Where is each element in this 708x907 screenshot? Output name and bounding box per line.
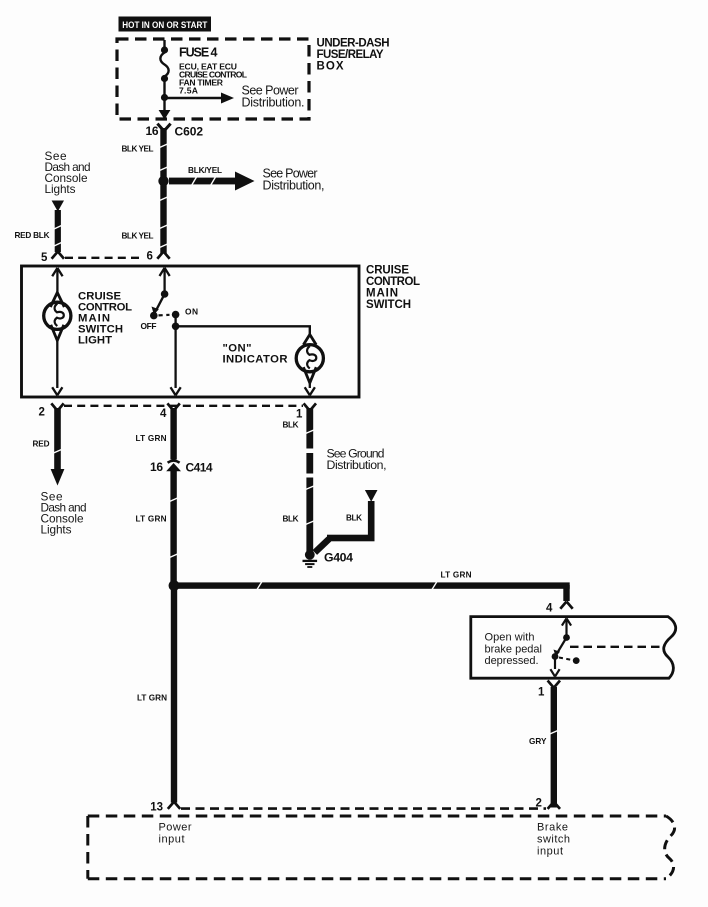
svg-text:Distribution,: Distribution, xyxy=(327,458,387,472)
svg-text:UNDER-DASH: UNDER-DASH xyxy=(317,38,390,50)
svg-text:7.5A: 7.5A xyxy=(179,86,198,96)
svg-text:Power: Power xyxy=(159,822,192,834)
svg-text:6: 6 xyxy=(147,251,153,263)
svg-text:depressed.: depressed. xyxy=(485,655,539,667)
svg-text:RED BLK: RED BLK xyxy=(15,231,50,240)
svg-text:Distribution.: Distribution. xyxy=(242,96,305,110)
svg-text:LT GRN: LT GRN xyxy=(136,434,167,443)
svg-text:Lights: Lights xyxy=(41,523,72,537)
svg-text:C602: C602 xyxy=(175,125,204,139)
svg-text:OFF: OFF xyxy=(141,321,157,331)
svg-text:ON: ON xyxy=(185,307,198,317)
svg-text:5: 5 xyxy=(41,252,48,264)
svg-text:4: 4 xyxy=(160,408,167,420)
svg-text:13: 13 xyxy=(150,802,163,814)
svg-text:LIGHT: LIGHT xyxy=(78,335,112,347)
svg-text:brake pedal: brake pedal xyxy=(485,644,543,656)
svg-text:BLK: BLK xyxy=(283,515,299,524)
svg-text:FUSE 4: FUSE 4 xyxy=(179,46,218,60)
svg-text:SWITCH: SWITCH xyxy=(366,299,411,311)
svg-text:G404: G404 xyxy=(324,551,353,565)
svg-text:HOT IN ON OR START: HOT IN ON OR START xyxy=(122,20,207,31)
svg-text:16: 16 xyxy=(146,124,159,138)
svg-text:2: 2 xyxy=(39,407,45,419)
svg-text:1: 1 xyxy=(296,409,303,421)
svg-text:input: input xyxy=(159,834,185,846)
svg-text:16: 16 xyxy=(150,460,163,474)
svg-text:FUSE/RELAY: FUSE/RELAY xyxy=(317,49,384,61)
svg-text:Distribution,: Distribution, xyxy=(263,179,325,193)
svg-text:Brake: Brake xyxy=(537,822,568,834)
svg-text:input: input xyxy=(537,846,563,858)
svg-text:BOX: BOX xyxy=(317,61,344,73)
svg-text:LT GRN: LT GRN xyxy=(441,571,472,580)
svg-text:Open with: Open with xyxy=(485,632,535,644)
svg-text:1: 1 xyxy=(538,687,545,699)
svg-text:LT GRN: LT GRN xyxy=(136,515,167,524)
svg-text:BLK: BLK xyxy=(346,514,362,523)
svg-text:BLK/YEL: BLK/YEL xyxy=(188,166,222,175)
svg-text:GRY: GRY xyxy=(529,737,547,746)
svg-text:BLK YEL: BLK YEL xyxy=(122,232,154,241)
svg-text:switch: switch xyxy=(537,834,570,846)
svg-text:MAIN: MAIN xyxy=(366,288,398,300)
svg-text:LT GRN: LT GRN xyxy=(137,694,167,703)
svg-text:CONTROL: CONTROL xyxy=(366,276,420,288)
svg-text:CRUISE: CRUISE xyxy=(366,265,409,277)
svg-text:BLK YEL: BLK YEL xyxy=(122,145,154,154)
svg-text:Lights: Lights xyxy=(45,182,76,196)
svg-text:INDICATOR: INDICATOR xyxy=(223,354,288,366)
svg-text:BLK: BLK xyxy=(283,421,299,430)
svg-text:4: 4 xyxy=(546,603,553,615)
svg-text:RED: RED xyxy=(33,440,50,449)
svg-text:C414: C414 xyxy=(186,461,213,475)
